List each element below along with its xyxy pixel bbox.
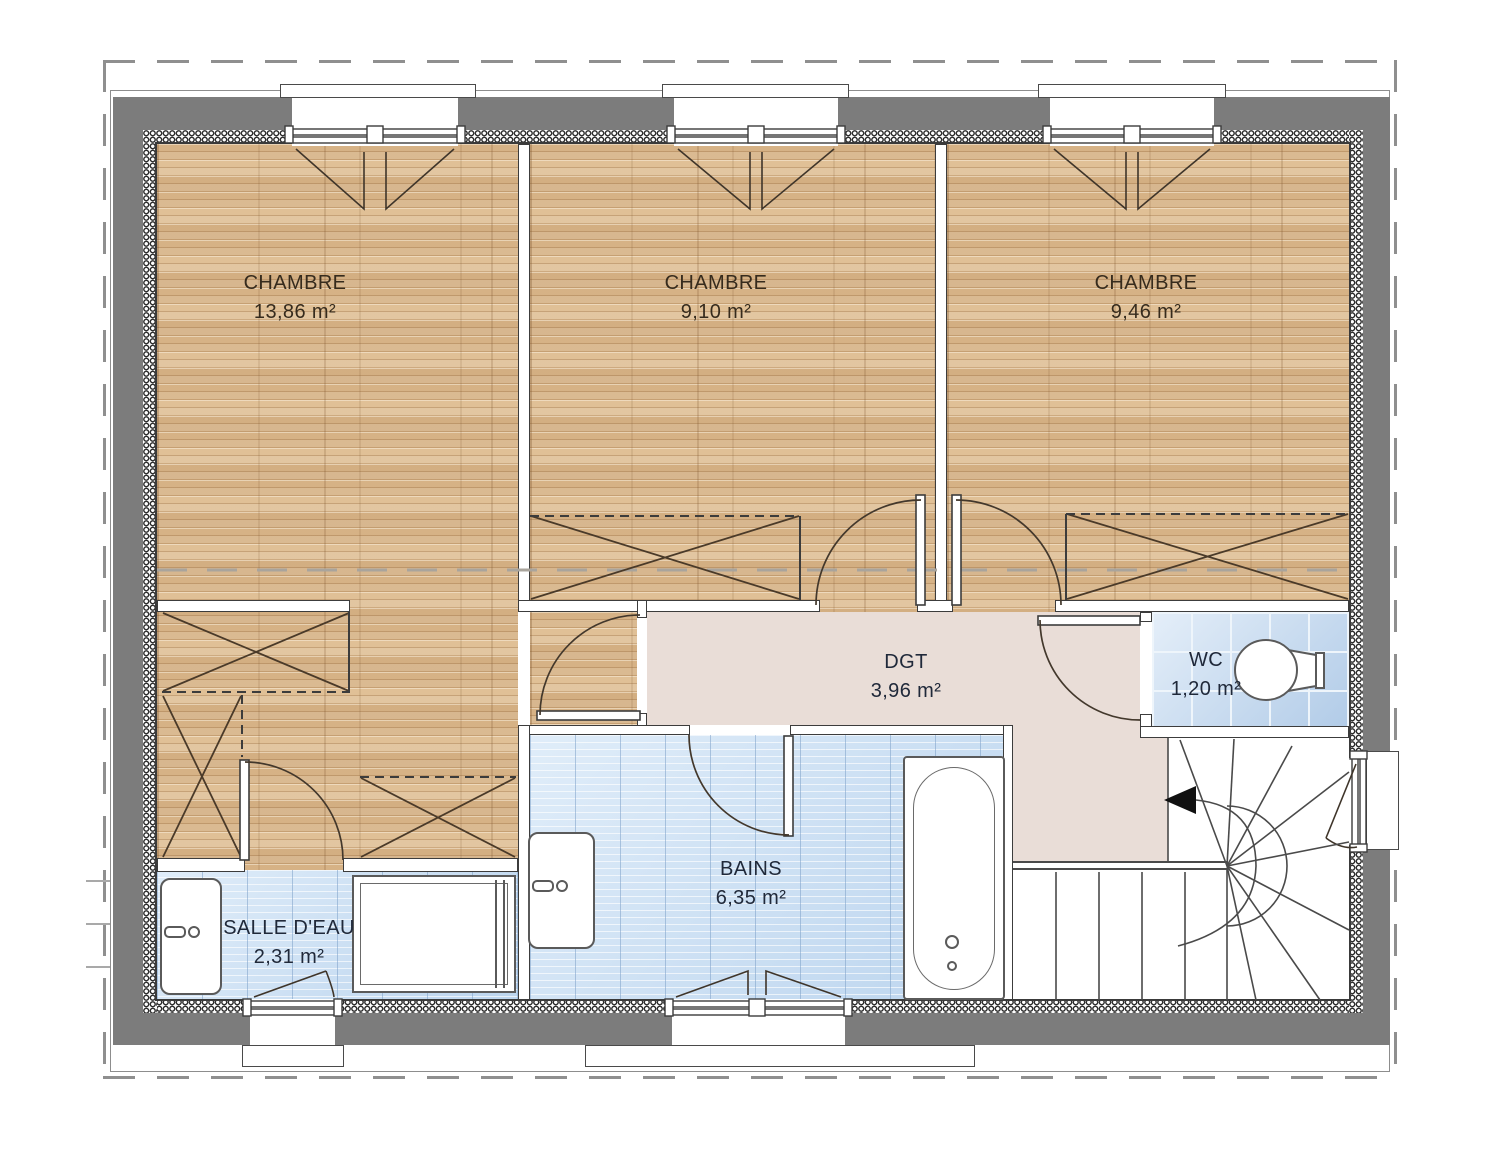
left-tick-1 [86, 880, 112, 882]
wall-chambre3-wc [1055, 600, 1349, 612]
room-area: 1,20 m² [1096, 675, 1316, 704]
room-area: 13,86 m² [185, 298, 405, 327]
exterior-wall-left [113, 97, 143, 1045]
bains-sink [528, 832, 595, 949]
room-label-chambre-2: CHAMBRE 9,10 m² [606, 269, 826, 327]
roof-overhang-dash-left [103, 60, 106, 1079]
window-opening-chambre2 [674, 97, 838, 146]
left-tick-2 [86, 923, 112, 925]
wall-salle-deau-north-left [157, 858, 245, 872]
room-label-salle-deau: SALLE D'EAU 2,31 m² [179, 914, 399, 972]
window-sill-bains [585, 1045, 975, 1067]
room-label-bains: BAINS 6,35 m² [641, 855, 861, 913]
window-opening-bains [672, 999, 845, 1046]
wall-salle-deau-north-right [343, 858, 518, 872]
window-sill-stairs [1366, 751, 1399, 850]
wall-wc-west-top [1140, 612, 1152, 622]
window-sill-chambre3 [1038, 84, 1226, 98]
window-sill-salle-deau [242, 1045, 344, 1067]
room-name: SALLE D'EAU [179, 914, 399, 943]
window-sill-chambre1 [280, 84, 476, 98]
room-label-wc: WC 1,20 m² [1096, 646, 1316, 704]
wall-dgt-west-top [637, 600, 647, 618]
room-label-chambre-1: CHAMBRE 13,86 m² [185, 269, 405, 327]
bathtub-inner [913, 767, 995, 990]
room-label-dgt: DGT 3,96 m² [796, 648, 1016, 706]
left-tick-3 [86, 966, 112, 968]
room-area: 3,96 m² [796, 677, 1016, 706]
wall-bains-north-left [518, 725, 690, 735]
room-area: 6,35 m² [641, 884, 861, 913]
window-sill-chambre2 [662, 84, 849, 98]
wall-chambre1-chambre2 [518, 144, 530, 612]
room-name: BAINS [641, 855, 861, 884]
window-opening-chambre1 [292, 97, 458, 146]
wall-between-doors [917, 600, 953, 612]
room-area: 2,31 m² [179, 943, 399, 972]
exterior-wall-right [1363, 97, 1390, 1045]
wall-wc-south [1140, 726, 1349, 738]
insulation-right [1349, 130, 1363, 1013]
roof-overhang-dash-right [1394, 60, 1397, 1079]
room-label-chambre-3: CHAMBRE 9,46 m² [1036, 269, 1256, 327]
stair-stringer [1013, 861, 1227, 870]
room-name: CHAMBRE [606, 269, 826, 298]
window-opening-chambre3 [1050, 97, 1214, 146]
room-name: CHAMBRE [185, 269, 405, 298]
wall-chambre2-chambre3 [935, 144, 947, 612]
wall-closet-a-top [157, 600, 350, 612]
room-name: CHAMBRE [1036, 269, 1256, 298]
roof-overhang-dash-bottom [103, 1076, 1397, 1079]
room-name: WC [1096, 646, 1316, 675]
room-name: DGT [796, 648, 1016, 677]
wall-bains-north-right [790, 725, 1013, 735]
floor-plan: CHAMBRE 13,86 m² CHAMBRE 9,10 m² CHAMBRE… [0, 0, 1500, 1149]
roof-overhang-dash-top [103, 60, 1397, 63]
room-area: 9,10 m² [606, 298, 826, 327]
room-area: 9,46 m² [1036, 298, 1256, 327]
wall-chambre2-dgt [518, 600, 820, 612]
window-opening-salle-deau [250, 999, 335, 1046]
